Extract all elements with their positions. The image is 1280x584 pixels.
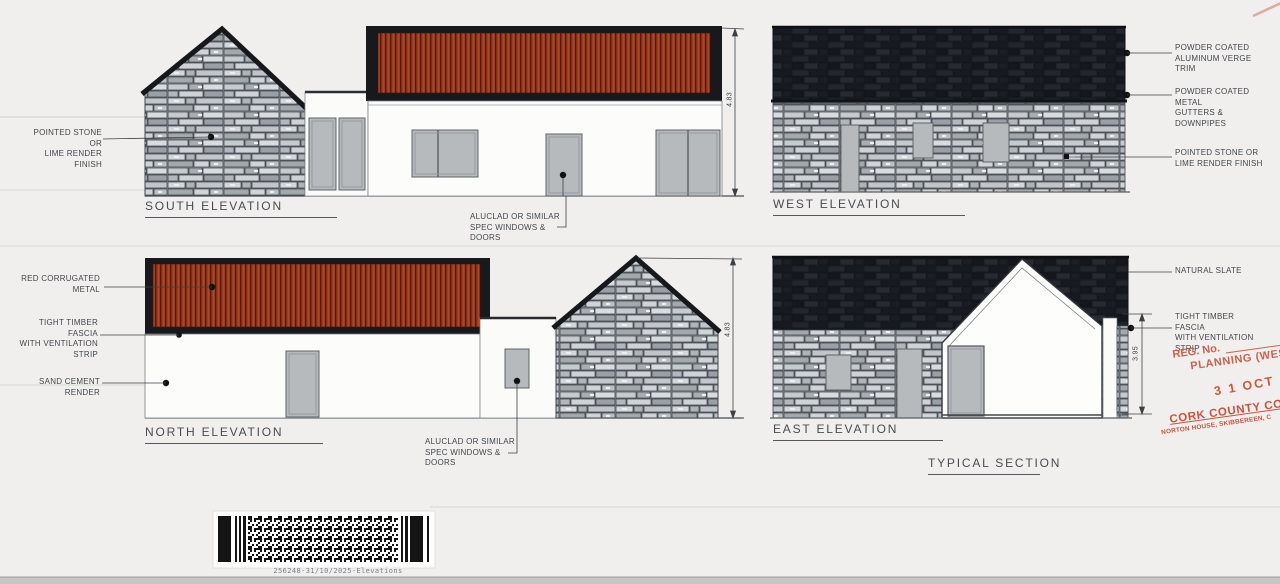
- north-roof-label: RED CORRUGATED METAL: [20, 274, 100, 295]
- west-window-large: [983, 123, 1009, 162]
- elevation-drawings: [0, 0, 1280, 584]
- south-windows-label: ALUCLAD OR SIMILAR SPEC WINDOWS & DOORS: [470, 212, 562, 244]
- west-door: [841, 125, 859, 192]
- north-fascia-label: TIGHT TIMBER FASCIA WITH VENTILATION STR…: [14, 318, 98, 360]
- north-elevation-drawing: [100, 258, 744, 453]
- east-door: [897, 349, 922, 418]
- barcode: [213, 511, 435, 568]
- scanned-drawing-page: POINTED STONE OR LIME RENDER FINISH ALUC…: [0, 0, 1280, 584]
- west-elevation-title: WEST ELEVATION: [773, 197, 965, 216]
- section-door: [948, 346, 984, 416]
- north-door: [286, 351, 319, 417]
- west-stone-label: POINTED STONE OR LIME RENDER FINISH: [1175, 148, 1271, 169]
- west-verge-label: POWDER COATED ALUMINUM VERGE TRIM: [1175, 43, 1271, 75]
- barcode-bar: [401, 516, 403, 562]
- barcode-stop-bar: [410, 516, 423, 562]
- east-elevation-title: EAST ELEVATION: [773, 422, 943, 441]
- west-stone-wall: [773, 103, 1125, 192]
- north-red-corrugated-roof: [153, 264, 480, 327]
- barcode-start-bar: [218, 516, 231, 562]
- south-height-dimension: [722, 28, 744, 196]
- west-elevation-drawing: [770, 27, 1172, 192]
- stamp-edge-mark: [1253, 3, 1280, 16]
- barcode-bar: [243, 516, 246, 562]
- scan-bottom-band: [0, 577, 1280, 584]
- east-stone-strip: [1117, 326, 1128, 415]
- north-render-label: SAND CEMENT RENDER: [10, 377, 100, 398]
- section-right-wall-band: [1103, 318, 1117, 418]
- barcode-bar: [239, 516, 241, 562]
- barcode-bar: [405, 516, 408, 562]
- south-window-pair: [412, 130, 478, 177]
- south-stone-label: POINTED STONE OR LIME RENDER FINISH: [20, 128, 102, 170]
- south-link-door-right: [339, 118, 365, 190]
- east-window-small: [826, 355, 851, 390]
- south-door: [546, 134, 582, 196]
- south-link-door-left: [309, 118, 336, 190]
- south-elevation-drawing: [103, 26, 744, 227]
- east-height-dim-text: 3.95: [1133, 342, 1140, 366]
- north-elevation-title: NORTH ELEVATION: [145, 425, 323, 444]
- south-red-corrugated-roof: [378, 33, 710, 93]
- barcode-data-region: [248, 516, 398, 562]
- south-door-leader-dot: [560, 172, 566, 178]
- north-height-dim-text: 4.83: [725, 318, 732, 342]
- south-elevation-title: SOUTH ELEVATION: [145, 199, 337, 218]
- east-elevation-drawing: [770, 257, 1172, 418]
- west-slate-roof: [773, 27, 1125, 102]
- south-height-dim-text: 4.83: [727, 88, 734, 112]
- west-gutters-label: POWDER COATED METAL GUTTERS & DOWNPIPES: [1175, 87, 1271, 129]
- typical-section-title: TYPICAL SECTION: [928, 456, 1040, 475]
- south-stone-gable: [145, 30, 305, 196]
- east-slate-label: NATURAL SLATE: [1175, 266, 1265, 277]
- barcode-caption: 256248-31/10/2025-Elevations: [243, 567, 433, 575]
- barcode-bar: [427, 516, 429, 562]
- west-stone-leader-dot: [1064, 154, 1069, 159]
- north-windows-label: ALUCLAD OR SIMILAR SPEC WINDOWS & DOORS: [425, 437, 517, 469]
- north-stone-gable: [556, 259, 718, 418]
- west-window-small: [913, 123, 933, 158]
- barcode-bar: [235, 516, 237, 562]
